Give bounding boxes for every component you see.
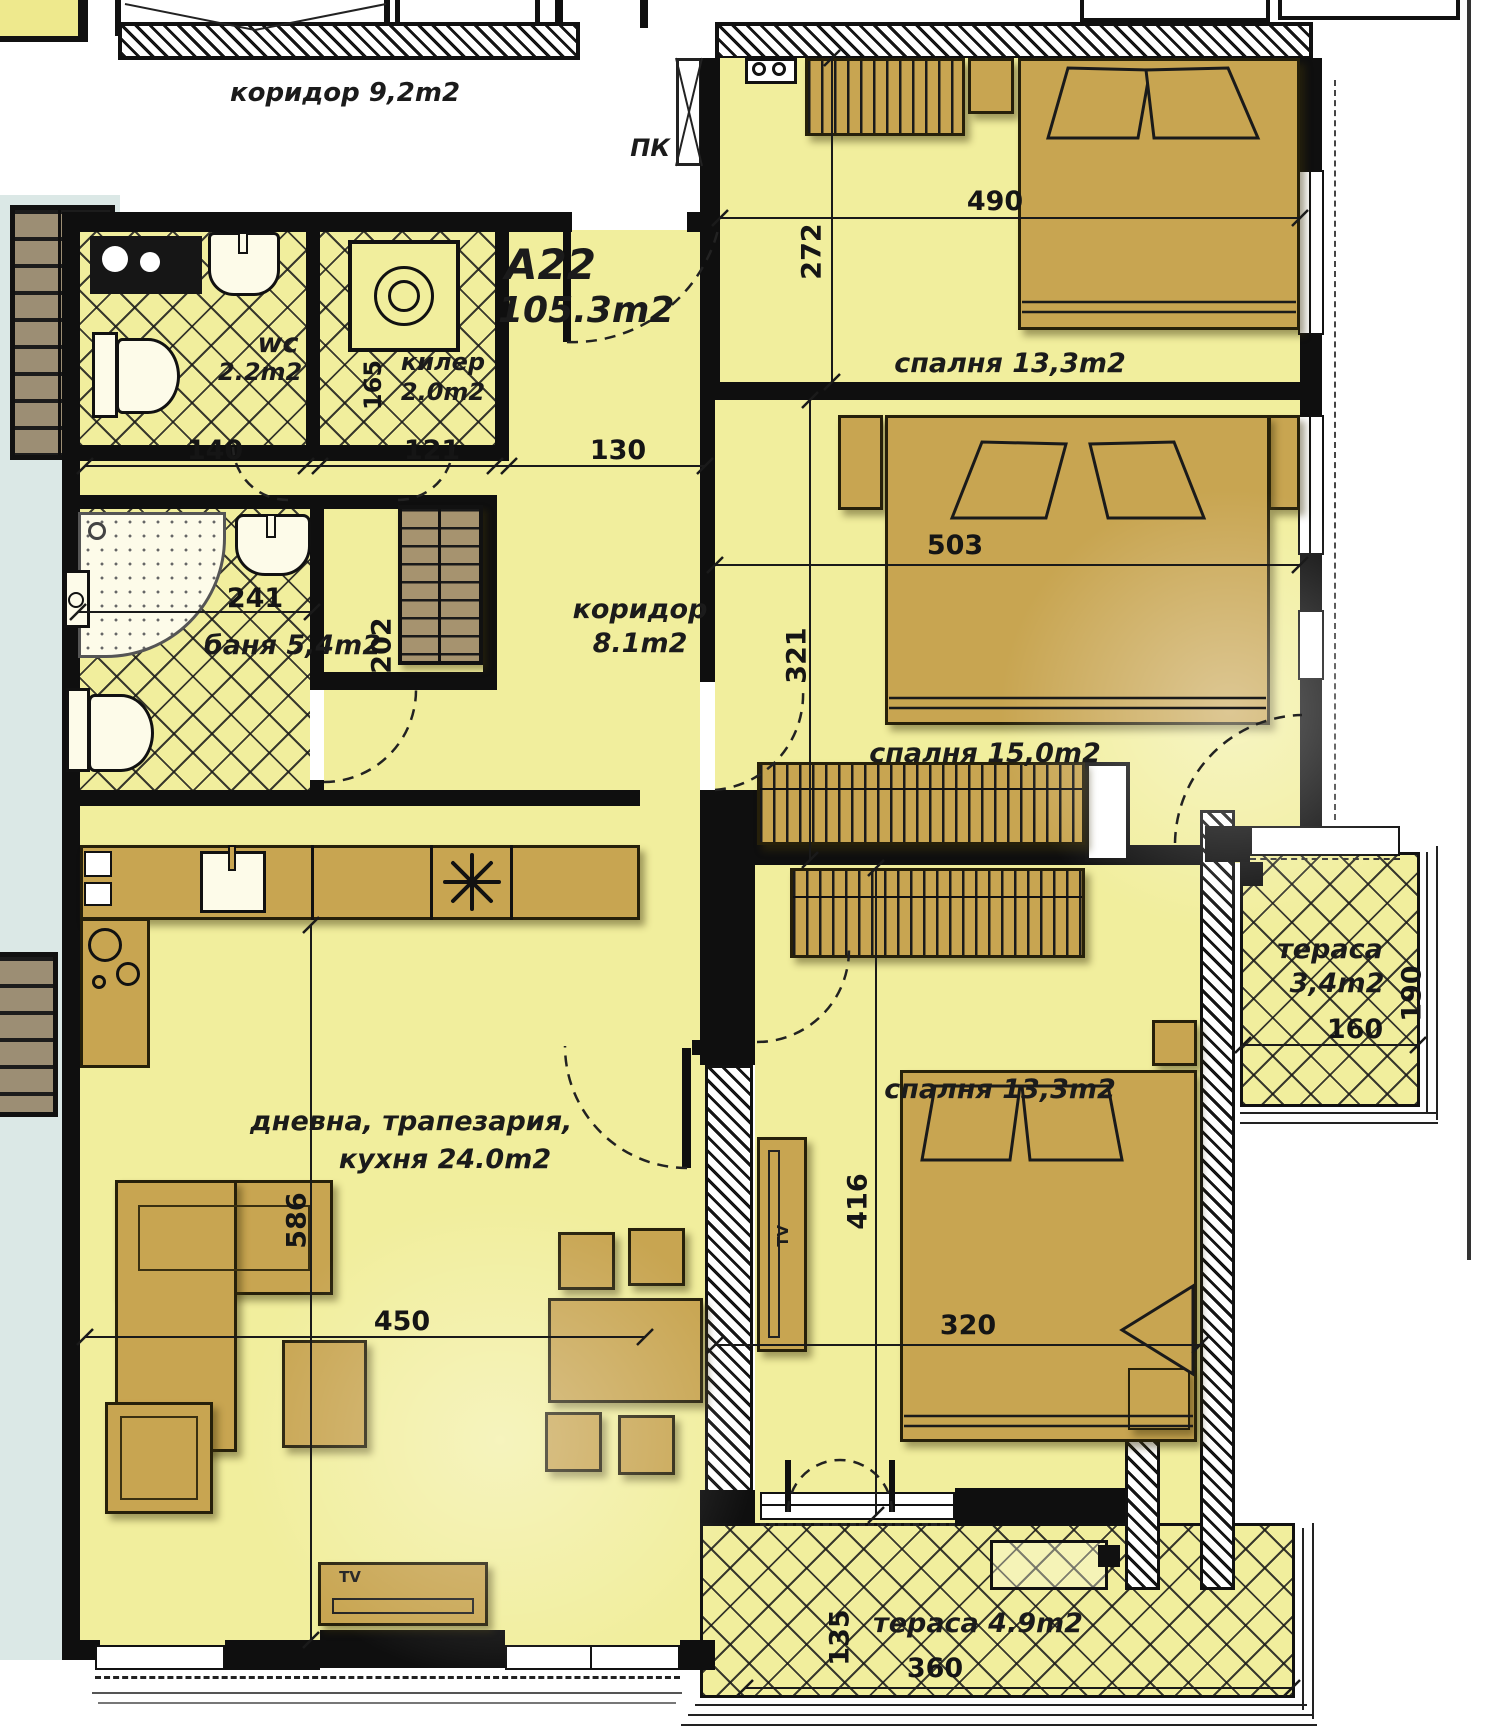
bedroom2-door-arc	[715, 690, 803, 790]
bedroom3-door-arc	[757, 950, 849, 1042]
living-w-dim: 450	[362, 1306, 442, 1337]
bedroom1-label: спалня 13,3m2	[880, 350, 1140, 378]
public-corridor-label: коридор 9,2m2	[225, 80, 465, 107]
terrace-bottom-label: тераса 4.9m2	[838, 1610, 1118, 1638]
dimension-ticks	[70, 50, 1426, 1696]
corridor-label-name: коридор	[540, 596, 740, 624]
terrace-right-door-arc	[1175, 715, 1302, 843]
bed-foot-lines	[889, 302, 1296, 1426]
adjacent-room-bed-lines	[125, 4, 386, 30]
terrace-right-h-dim: 190	[1397, 954, 1428, 1034]
terrace-bottom-h-dim: 135	[825, 1598, 856, 1678]
bedroom1-w-dim: 490	[955, 186, 1035, 217]
pk-duct-x	[676, 58, 702, 166]
terrace-bottom-door-arc-1	[788, 1460, 840, 1512]
wc-label-name: wc	[238, 330, 318, 358]
bedroom3-w-dim: 320	[928, 1310, 1008, 1341]
bedroom3-label: спалня 13,3m2	[865, 1076, 1135, 1104]
pk-label: ПК	[612, 136, 670, 161]
bath-w-dim: 241	[215, 583, 295, 614]
vector-layer	[0, 0, 1500, 1735]
terrace-right-label-name: тераса	[1255, 936, 1405, 964]
apartment-id: A22	[505, 243, 645, 287]
bath-door-arc	[324, 690, 416, 782]
terrace-right-w-dim: 160	[1315, 1014, 1395, 1045]
bath-label: баня 5,4m2	[200, 632, 385, 660]
terrace-right-label-area: 3,4m2	[1262, 970, 1412, 998]
bedroom3-h-dim: 416	[843, 1162, 874, 1242]
storage-h-dim: 165	[359, 350, 387, 420]
storage-label-area: 2.0m2	[393, 380, 493, 405]
storage-label-name: килер	[393, 350, 493, 375]
corridor-label-area: 8.1m2	[540, 630, 740, 658]
terrace-bottom-door-arc-2	[840, 1460, 892, 1512]
wc-label-area: 2.2m2	[218, 360, 298, 385]
storage-w-dim: 121	[392, 435, 472, 466]
living-label-line2: кухня 24.0m2	[295, 1146, 595, 1174]
bedroom2-label: спалня 15,0m2	[855, 740, 1115, 768]
terrace-bottom-w-dim: 360	[895, 1653, 975, 1684]
cooktop-asterisk	[445, 855, 499, 909]
bedroom1-h-dim: 272	[797, 212, 828, 292]
apartment-area: 105.3m2	[498, 292, 718, 330]
bath-h-dim: 202	[367, 606, 398, 686]
bedroom2-h-dim: 321	[782, 616, 813, 696]
wc-w-dim: 140	[175, 435, 255, 466]
living-label-line1: дневна, трапезария,	[250, 1108, 550, 1136]
bedroom2-w-dim: 503	[915, 530, 995, 561]
floor-plan: TV TV	[0, 0, 1500, 1735]
bed-pillows	[922, 68, 1258, 1374]
corridor-w-dim: 130	[578, 435, 658, 466]
living-h-dim: 586	[282, 1181, 313, 1261]
